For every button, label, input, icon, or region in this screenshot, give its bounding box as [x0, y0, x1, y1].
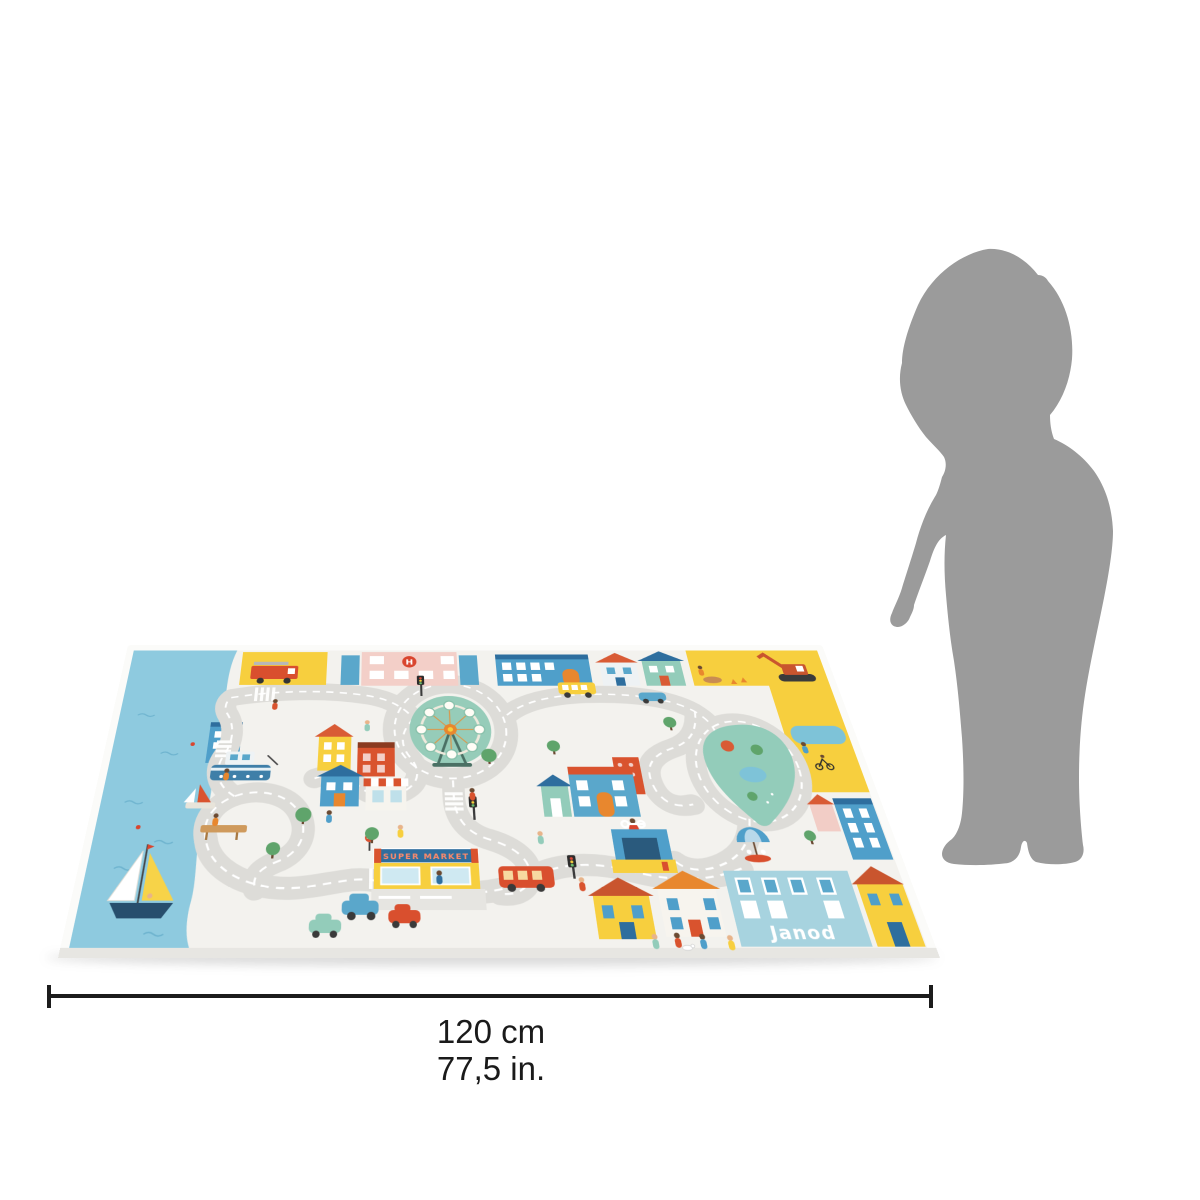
dimension-labels: 120 cm 77,5 in.: [49, 1013, 933, 1087]
dimension-cm-label: 120 cm: [49, 1013, 933, 1050]
pond: [788, 726, 848, 744]
school: [495, 655, 593, 686]
fire-station: [239, 652, 328, 685]
play-mat: H: [58, 645, 940, 958]
child-silhouette-icon: [878, 243, 1118, 871]
product-image: H: [0, 0, 1200, 1200]
dimension-tick-right: [929, 985, 933, 1008]
mat-artwork: H: [58, 645, 940, 958]
dimension-in-label: 77,5 in.: [49, 1050, 933, 1087]
janod-building: Janod: [723, 871, 873, 947]
dimension-line: [49, 994, 933, 998]
hospital-letter: H: [405, 658, 413, 666]
janod-logo-text: Janod: [766, 922, 839, 944]
supermarket-sign-text: SUPER MARKET: [383, 853, 470, 862]
mat-edge-shade: [58, 948, 940, 958]
excavator-tracks: [778, 674, 818, 681]
child-silhouette-shape: [890, 249, 1113, 865]
excavator-body: [780, 664, 808, 675]
